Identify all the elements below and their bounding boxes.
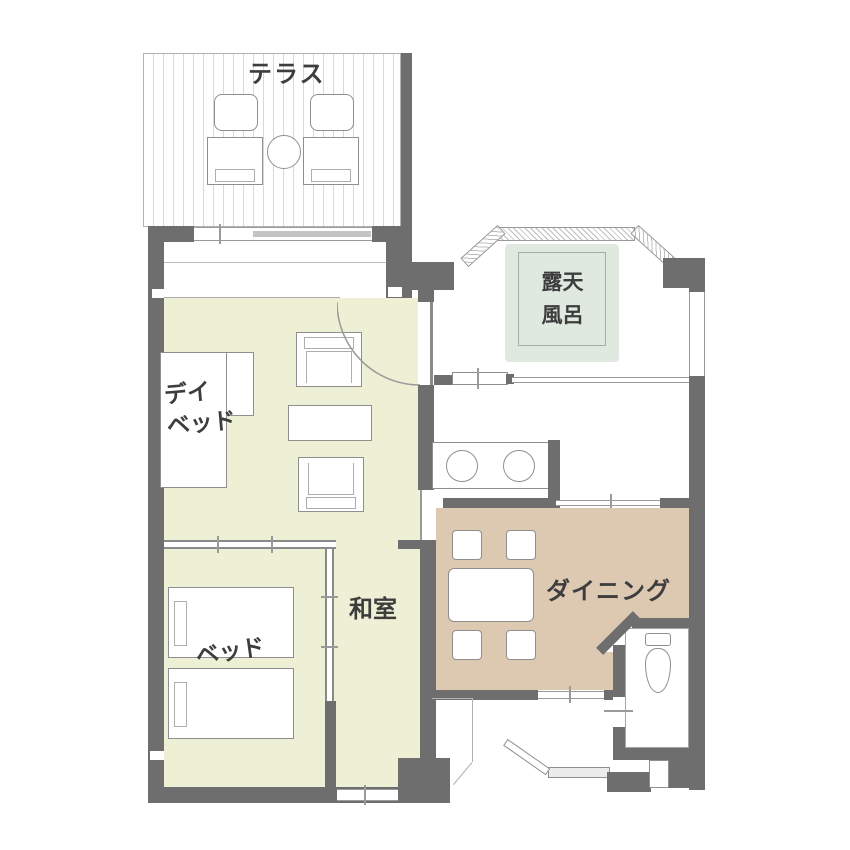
tick-mark xyxy=(217,536,219,553)
daybed-label-line2: ベッド xyxy=(166,406,237,443)
ottoman-cushion xyxy=(311,169,351,182)
tick-mark xyxy=(569,686,571,703)
wall-notch xyxy=(388,287,402,297)
terrace-ottoman-icon xyxy=(303,137,359,185)
vanity-sink-icon xyxy=(503,450,535,482)
sliding-door-icon xyxy=(325,549,334,701)
window-right-wall xyxy=(689,292,705,376)
terrace-chair-icon xyxy=(214,94,258,131)
toilet-door-opening xyxy=(613,697,625,727)
dining-chair-icon xyxy=(452,630,482,660)
toilet-icon xyxy=(645,633,671,646)
twin-bed-icon xyxy=(168,668,294,739)
bay-window-icon xyxy=(497,227,635,241)
vanity-sink-icon xyxy=(446,450,478,482)
washitsu-label: 和室 xyxy=(349,593,397,625)
bedroom-wall xyxy=(325,701,336,787)
sliding-door-icon xyxy=(538,691,604,699)
door-swing-arc-icon xyxy=(337,302,422,387)
window-sliding xyxy=(337,789,398,801)
dining-top-wall xyxy=(443,498,556,508)
dining-top-wall xyxy=(660,498,689,508)
dining-table-icon xyxy=(448,568,534,622)
dining-chair-icon xyxy=(506,530,536,560)
dining-chair-icon xyxy=(452,530,482,560)
floor-plan: テラス デイ ベッド 和室 xyxy=(0,0,850,850)
dining-chair-icon xyxy=(506,630,536,660)
tick-mark xyxy=(271,536,273,553)
sliding-door-icon xyxy=(452,372,508,385)
sliding-track xyxy=(512,377,689,383)
central-wall xyxy=(418,290,434,302)
entrance-bottom-wall xyxy=(607,772,651,792)
tick-mark xyxy=(477,368,479,389)
terrace-label: テラス xyxy=(248,58,326,90)
entrance-pier xyxy=(398,758,450,803)
genkan-step-line xyxy=(472,698,473,762)
low-table-icon xyxy=(288,405,372,441)
opening-edge xyxy=(420,490,422,542)
daybed-label: デイ ベッド xyxy=(163,375,237,443)
left-outer-wall xyxy=(148,226,164,803)
terrace-chair-icon xyxy=(310,94,354,131)
entrance-step xyxy=(548,767,610,778)
genkan-step-line xyxy=(432,698,472,699)
tick-mark xyxy=(604,710,633,712)
toilet-bottom-wall xyxy=(613,748,689,760)
open-air-bath-label: 露天 風呂 xyxy=(520,266,605,332)
sliding-door-icon xyxy=(164,540,336,549)
tick-mark xyxy=(321,596,338,598)
window-panel xyxy=(253,231,371,237)
door-leaf xyxy=(430,302,433,385)
terrace-right-wall xyxy=(401,53,412,227)
tatami-top-edge xyxy=(164,297,340,298)
round-table-icon xyxy=(267,135,301,169)
central-wall-block xyxy=(406,262,454,290)
sliding-track xyxy=(556,500,660,506)
dining-label: ダイニング xyxy=(546,575,671,607)
ottoman-cushion xyxy=(215,169,255,182)
armchair-icon xyxy=(298,457,364,512)
bath-bottom-wall xyxy=(434,375,454,385)
armchair-seat xyxy=(308,463,354,495)
shoe-cabinet xyxy=(649,760,669,788)
pillow xyxy=(174,682,187,727)
tick-mark xyxy=(364,785,366,805)
toilet-top-wall xyxy=(632,618,689,628)
armchair-back xyxy=(306,497,356,509)
bath-label-line1: 露天 xyxy=(520,266,605,299)
terrace-ottoman-icon xyxy=(207,137,263,185)
entrance-door-icon xyxy=(503,739,550,775)
pillow xyxy=(174,601,187,646)
corner-wall-block xyxy=(669,760,689,788)
tick-mark xyxy=(219,224,221,244)
genkan-step-diagonal xyxy=(453,762,472,785)
central-wall-lower xyxy=(420,542,436,760)
bath-label-line2: 風呂 xyxy=(520,299,605,332)
tick-mark xyxy=(321,646,338,648)
engawa-line xyxy=(164,262,386,263)
bay-window-diagonal xyxy=(460,225,505,267)
